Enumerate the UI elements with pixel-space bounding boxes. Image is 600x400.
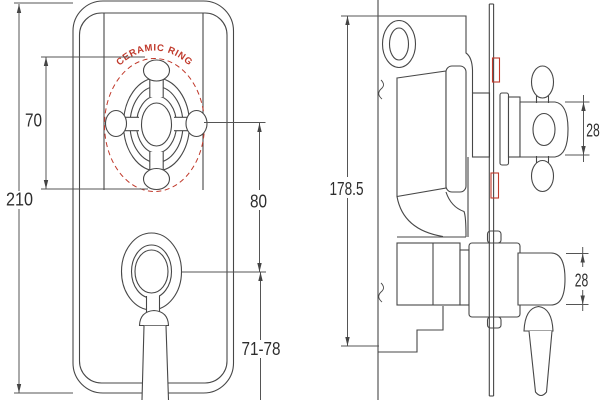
- lever-neck: [147, 295, 160, 312]
- body-cone: [397, 71, 446, 197]
- lever-arm-fill: [142, 326, 169, 400]
- body-lower-bell: [397, 197, 443, 237]
- volume-cartridge: [469, 243, 520, 317]
- volume-lever-arm: [529, 331, 552, 396]
- thermostat-step: [509, 97, 521, 157]
- dim-71-78: 71-78: [242, 272, 281, 400]
- dim-178-5-text: 178.5: [330, 178, 364, 199]
- dim-178-5: 178.5: [330, 16, 380, 346]
- outlet-box: [397, 243, 460, 305]
- inlet-port-inner: [390, 28, 409, 60]
- lever-handle: [122, 233, 182, 400]
- thermostat-cylinder: [520, 102, 568, 157]
- cross-handle-lobe-bottom: [144, 169, 170, 190]
- wall-break-lower: [379, 283, 384, 302]
- dim-28-bottom-text: 28: [575, 270, 589, 291]
- shower-valve-technical-drawing: CERAMIC RING: [0, 0, 600, 400]
- thermostat-flange: [500, 93, 509, 165]
- volume-lever-dome: [524, 307, 553, 332]
- ceramic-ring-side-marker-bottom: [491, 173, 499, 198]
- dimensions: 210 70 80 71-78: [6, 3, 600, 400]
- body-cone-face: [446, 66, 466, 192]
- dim-71-78-text: 71-78: [242, 338, 281, 359]
- volume-handle-side: [518, 253, 565, 396]
- dim-28-bottom: 28: [566, 247, 589, 311]
- dim-80-text: 80: [250, 191, 267, 212]
- thermostat-lobe-top: [532, 66, 554, 98]
- valve-body: [378, 16, 473, 352]
- thermostat-cartridge-stem: [473, 93, 490, 157]
- front-view: CERAMIC RING: [73, 1, 234, 400]
- thermostat-handle-side: [500, 66, 568, 192]
- cross-handle-hub: [142, 103, 172, 146]
- dim-210-text: 210: [6, 189, 33, 210]
- technical-drawing-page: CERAMIC RING: [0, 0, 600, 400]
- outlet-stem: [460, 250, 469, 305]
- body-face-bottom-curve: [446, 192, 466, 237]
- dim-28-top: 28: [565, 95, 600, 162]
- cross-handle-lobe-top: [144, 60, 170, 81]
- body-bottom-steps: [378, 306, 443, 352]
- dim-70-text: 70: [25, 110, 42, 131]
- dim-28-top-text: 28: [586, 120, 600, 141]
- wall-break-upper: [379, 80, 384, 99]
- lever-bell: [140, 311, 169, 326]
- cross-handle-lobe-right: [186, 111, 207, 137]
- volume-hub: [518, 253, 565, 305]
- cross-handle-lobe-left: [106, 111, 127, 137]
- thermostat-lobe-bottom: [532, 161, 554, 192]
- dim-210: 210: [6, 3, 73, 393]
- side-view: [378, 0, 568, 400]
- dim-80: 80: [182, 123, 267, 273]
